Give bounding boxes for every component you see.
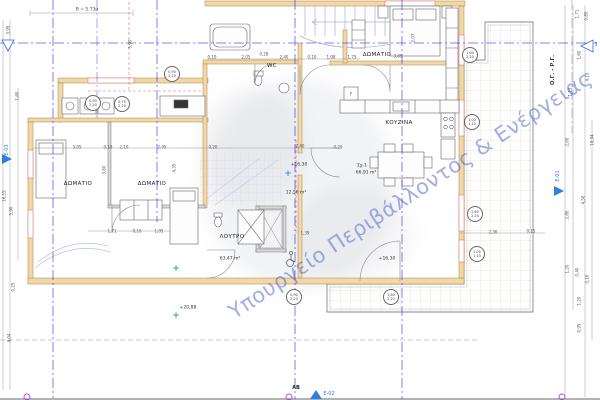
floor-plan-drawing — [0, 0, 600, 400]
reference-lines — [0, 340, 600, 399]
floor-plan-canvas: ΔΩΜΑΤΙΟΔΩΜΑΤΙΟΔΩΜΑΤΙΟΚΟΥΖΙΝΑWCΛΟΥΤΡΟ Σχ-… — [0, 0, 600, 400]
